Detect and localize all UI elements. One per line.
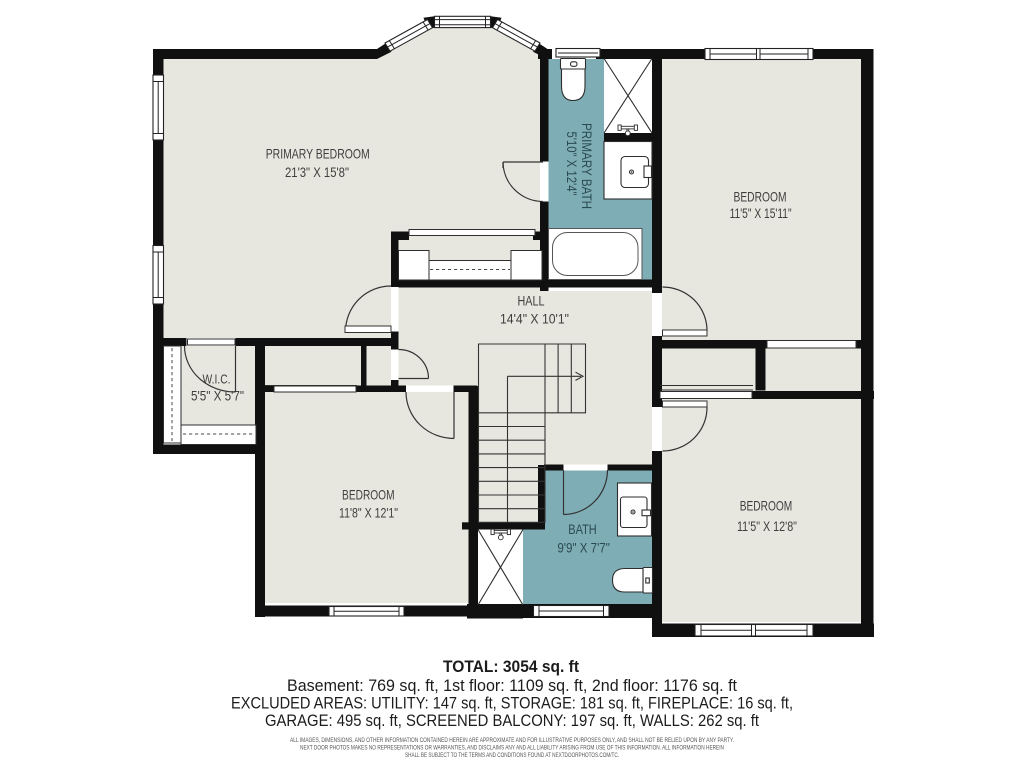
svg-text:PRIMARY BATH: PRIMARY BATH bbox=[579, 123, 595, 209]
svg-text:Basement: 769 sq. ft, 1st floo: Basement: 769 sq. ft, 1st floor: 1109 sq… bbox=[287, 677, 737, 695]
svg-text:PRIMARY BEDROOM: PRIMARY BEDROOM bbox=[266, 146, 370, 162]
svg-text:11'5" X 12'8": 11'5" X 12'8" bbox=[737, 519, 797, 534]
svg-text:W.I.C.: W.I.C. bbox=[203, 373, 231, 387]
svg-text:HALL: HALL bbox=[518, 293, 545, 309]
svg-text:11'8" X 12'1": 11'8" X 12'1" bbox=[339, 505, 398, 520]
svg-text:BEDROOM: BEDROOM bbox=[342, 486, 395, 502]
svg-text:5'5" X 5'7": 5'5" X 5'7" bbox=[191, 388, 244, 403]
svg-text:ALL IMAGES, DIMENSIONS, AND OT: ALL IMAGES, DIMENSIONS, AND OTHER INFORM… bbox=[290, 738, 734, 744]
svg-text:EXCLUDED AREAS: UTILITY: 147 s: EXCLUDED AREAS: UTILITY: 147 sq. ft, STO… bbox=[231, 695, 793, 713]
svg-text:TOTAL: 3054 sq. ft: TOTAL: 3054 sq. ft bbox=[443, 657, 579, 676]
svg-text:GARAGE: 495 sq. ft, SCREENED B: GARAGE: 495 sq. ft, SCREENED BALCONY: 19… bbox=[265, 712, 759, 730]
svg-text:9'9" X 7'7": 9'9" X 7'7" bbox=[557, 540, 610, 555]
svg-text:NEXT DOOR PHOTOS MAKES NO REPR: NEXT DOOR PHOTOS MAKES NO REPRESENTATION… bbox=[300, 746, 724, 752]
svg-text:SHALL BE SUBJECT TO THE TERMS: SHALL BE SUBJECT TO THE TERMS AND CONDIT… bbox=[405, 753, 619, 759]
svg-text:21'3" X 15'8": 21'3" X 15'8" bbox=[285, 165, 349, 180]
svg-text:BEDROOM: BEDROOM bbox=[734, 189, 787, 205]
svg-text:BEDROOM: BEDROOM bbox=[740, 498, 793, 514]
svg-text:11'5" X 15'11": 11'5" X 15'11" bbox=[730, 206, 792, 221]
svg-text:5'10" X 12'4": 5'10" X 12'4" bbox=[564, 132, 579, 196]
svg-text:BATH: BATH bbox=[568, 521, 597, 537]
svg-text:14'4" X 10'1": 14'4" X 10'1" bbox=[500, 311, 569, 326]
